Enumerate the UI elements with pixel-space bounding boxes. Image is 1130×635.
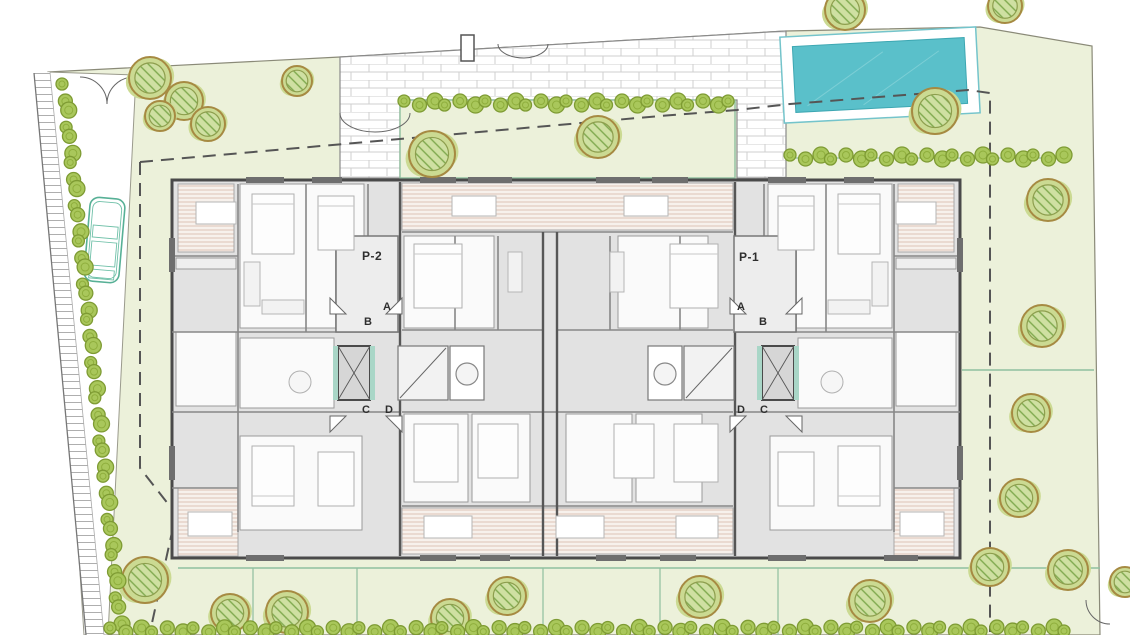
tree-canopy	[1033, 185, 1063, 215]
terrace-table	[900, 512, 944, 536]
hedge-shrub	[520, 99, 532, 111]
hedge-shrub	[394, 626, 406, 635]
hedge-shrub	[243, 621, 257, 635]
sofa	[872, 262, 888, 306]
hedge-shrub	[72, 235, 84, 247]
hedge-shrub	[453, 94, 467, 108]
terrace-table	[896, 202, 936, 224]
hedge-shrub	[1001, 148, 1015, 162]
hedge-shrub	[479, 95, 491, 107]
hedge-shrub	[722, 95, 734, 107]
elevator-rail	[333, 346, 338, 400]
room	[176, 332, 236, 406]
hedge-shrub	[97, 470, 109, 482]
shower	[654, 363, 676, 385]
window-sill	[660, 555, 696, 561]
hedge-shrub	[906, 153, 918, 165]
bed	[252, 446, 294, 506]
hedge-shrub	[987, 153, 999, 165]
hedge-shrub	[700, 624, 714, 635]
elevator-rail	[370, 346, 375, 400]
label-right-core-d: D	[737, 405, 745, 416]
hedge-shrub	[145, 626, 157, 635]
tree-canopy	[583, 122, 613, 152]
label-p2: P-2	[362, 250, 382, 262]
hedge-shrub	[920, 148, 934, 162]
tree-canopy	[493, 582, 520, 609]
hedge-shrub	[782, 624, 796, 635]
bed	[478, 424, 518, 478]
hedge-shrub	[62, 129, 76, 143]
hedge-shrub	[1042, 152, 1056, 166]
site-plan-drawing	[0, 0, 1130, 635]
hedge-shrub	[368, 625, 382, 635]
hedge-shrub	[326, 621, 340, 635]
hedge-shrub	[77, 259, 93, 275]
tree-canopy	[976, 553, 1003, 580]
hedge-shrub	[880, 152, 894, 166]
hedge-shrub	[907, 620, 921, 634]
tree-canopy	[918, 94, 951, 127]
label-p1: P-1	[739, 251, 759, 263]
tree-canopy	[196, 112, 220, 136]
terrace-table	[452, 196, 496, 216]
sofa	[828, 300, 870, 314]
hedge-shrub	[824, 620, 838, 634]
hedge-shrub	[602, 621, 614, 633]
hedge-shrub	[575, 98, 589, 112]
kitchen-counter	[896, 258, 956, 269]
hedge-shrub	[87, 365, 101, 379]
hedge-shrub	[892, 625, 904, 635]
window-sill	[768, 177, 806, 183]
window-sill	[246, 177, 284, 183]
hedge-shrub	[494, 98, 508, 112]
tree-canopy	[149, 105, 171, 127]
hedge-shrub	[451, 625, 465, 635]
window-sill	[169, 446, 175, 480]
tree-canopy	[1027, 311, 1057, 341]
window-sill	[596, 555, 626, 561]
table	[289, 371, 311, 393]
terrace-table	[676, 516, 718, 538]
hedge-shrub	[990, 620, 1004, 634]
label-right-core-b: B	[759, 317, 767, 328]
elevator-rail	[757, 346, 762, 400]
window-sill	[420, 555, 456, 561]
bed	[252, 194, 294, 254]
hedge-shrub	[477, 626, 489, 635]
bed	[838, 446, 880, 506]
hedge-shrub	[643, 625, 655, 635]
hedge-shrub	[56, 78, 68, 90]
hedge-shrub	[741, 620, 755, 634]
tree-canopy	[831, 0, 860, 24]
window-sill	[468, 177, 512, 183]
hedge-shrub	[112, 600, 126, 614]
hedge-shrub	[1017, 621, 1029, 633]
tree-canopy	[855, 586, 885, 616]
bed	[414, 424, 458, 482]
hedge-shrub	[69, 181, 85, 197]
hedge-shrub	[85, 337, 101, 353]
hedge-shrub	[726, 625, 738, 635]
window-sill	[480, 555, 510, 561]
hedge-shrub	[617, 624, 631, 635]
bed	[318, 196, 354, 250]
hedge-shrub	[534, 625, 548, 635]
window-sill	[169, 238, 175, 272]
tree-canopy	[1005, 484, 1032, 511]
hedge-shrub	[799, 152, 813, 166]
hedge-shrub	[696, 94, 710, 108]
hedge-shrub	[601, 99, 613, 111]
hedge-shrub	[1056, 147, 1072, 163]
tree-canopy	[286, 70, 308, 92]
room	[896, 332, 956, 406]
hedge-shrub	[160, 621, 174, 635]
tree-canopy	[1017, 399, 1044, 426]
bed	[838, 194, 880, 254]
hedge-shrub	[961, 152, 975, 166]
hedge-shrub	[784, 149, 796, 161]
hedge-shrub	[103, 521, 117, 535]
hedge-shrub	[89, 392, 101, 404]
hedge-shrub	[946, 149, 958, 161]
hedge-shrub	[353, 622, 365, 634]
label-left-core-c: C	[362, 405, 370, 416]
tree-canopy	[135, 63, 165, 93]
hedge-shrub	[61, 102, 77, 118]
hedge-shrub	[439, 99, 451, 111]
hedge-shrub	[865, 149, 877, 161]
window-sill	[957, 238, 963, 272]
hedge-shrub	[94, 416, 110, 432]
bed	[778, 452, 814, 506]
label-left-core-a: A	[383, 302, 391, 313]
hedge-shrub	[865, 624, 879, 635]
hedge-shrub	[682, 99, 694, 111]
tree-canopy	[685, 582, 715, 612]
label-left-core-b: B	[364, 317, 372, 328]
hedge-shrub	[398, 95, 410, 107]
table	[821, 371, 843, 393]
hedge-shrub	[825, 153, 837, 165]
terrace-table	[424, 516, 472, 538]
entry-pillar	[461, 35, 474, 61]
label-right-core-a: A	[737, 302, 745, 313]
hedge-shrub	[119, 625, 133, 635]
hedge-shrub	[413, 98, 427, 112]
hedge-shrub	[1027, 149, 1039, 161]
window-sill	[957, 446, 963, 480]
hedge-shrub	[615, 94, 629, 108]
hedge-shrub	[560, 95, 572, 107]
hedge-shrub	[71, 208, 85, 222]
hedge-shrub	[104, 622, 116, 634]
hedge-shrub	[656, 98, 670, 112]
bed	[318, 452, 354, 506]
tree-canopy	[1054, 556, 1083, 585]
hedge-shrub	[409, 621, 423, 635]
hedge-shrub	[110, 573, 126, 589]
hedge-shrub	[934, 621, 946, 633]
hedge-shrub	[492, 621, 506, 635]
room	[240, 338, 334, 408]
tree-canopy	[128, 563, 161, 596]
hedge-shrub	[187, 622, 199, 634]
hedge-shrub	[1031, 624, 1045, 635]
tree-canopy	[1114, 571, 1130, 593]
label-right-core-c: C	[760, 405, 768, 416]
hedge-shrub	[95, 443, 109, 457]
elevator-rail	[794, 346, 799, 400]
terrace-table	[624, 196, 668, 216]
hedge-shrub	[560, 626, 572, 635]
hedge-shrub	[768, 621, 780, 633]
hedge-shrub	[975, 625, 987, 635]
window-sill	[420, 177, 456, 183]
room	[798, 338, 892, 408]
hedge-shrub	[658, 620, 672, 634]
hedge-shrub	[270, 622, 282, 634]
hedge-shrub	[534, 94, 548, 108]
window-sill	[596, 177, 640, 183]
hedge-shrub	[948, 624, 962, 635]
kitchen-counter	[176, 258, 236, 269]
bed	[614, 424, 654, 478]
sofa	[262, 300, 304, 314]
hedge-shrub	[202, 625, 216, 635]
hedge-shrub	[285, 625, 299, 635]
shower	[456, 363, 478, 385]
bed	[778, 196, 814, 250]
floor-plan-screenshot: P-2 P-1 A B C D A B D C	[0, 0, 1130, 635]
hedge-shrub	[519, 622, 531, 634]
hedge-shrub	[102, 494, 118, 510]
terrace-table	[188, 512, 232, 536]
hedge-shrub	[79, 286, 93, 300]
sofa	[508, 252, 522, 292]
hedge-shrub	[839, 148, 853, 162]
hedge-shrub	[81, 313, 93, 325]
tree-canopy	[415, 137, 448, 170]
window-sill	[844, 177, 874, 183]
hedge-shrub	[436, 622, 448, 634]
bed	[674, 424, 718, 482]
window-sill	[884, 555, 918, 561]
hedge-shrub	[105, 549, 117, 561]
hedge-shrub	[228, 626, 240, 635]
terrace-table	[196, 202, 236, 224]
sofa	[244, 262, 260, 306]
hedge-shrub	[575, 621, 589, 635]
window-sill	[312, 177, 342, 183]
hedge-shrub	[809, 625, 821, 635]
label-left-core-d: D	[385, 405, 393, 416]
hedge-shrub	[685, 621, 697, 633]
hedge-shrub	[64, 156, 76, 168]
hedge-shrub	[311, 626, 323, 635]
hedge-shrub	[851, 621, 863, 633]
window-sill	[768, 555, 806, 561]
hedge-shrub	[641, 95, 653, 107]
tree-canopy	[993, 0, 1017, 18]
window-sill	[652, 177, 688, 183]
sofa	[610, 252, 624, 292]
window-sill	[246, 555, 284, 561]
terrace-table	[556, 516, 604, 538]
